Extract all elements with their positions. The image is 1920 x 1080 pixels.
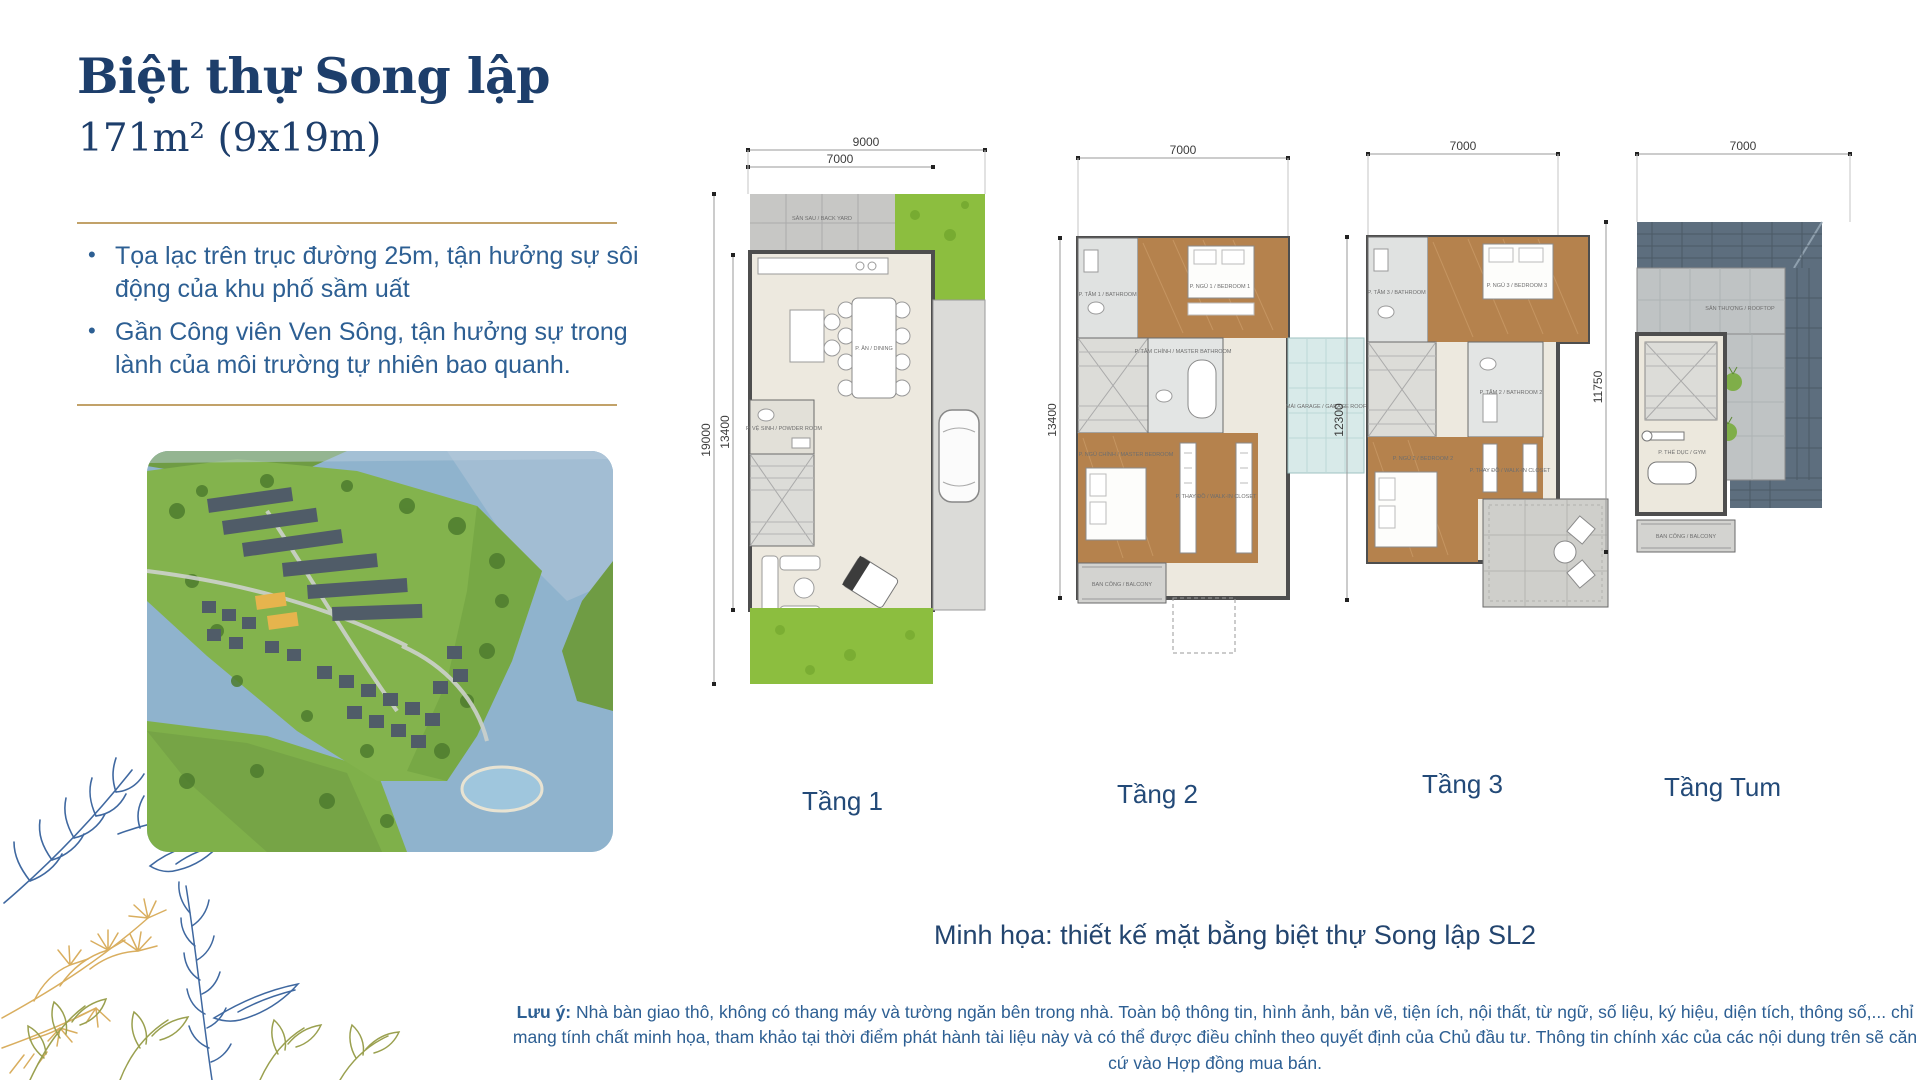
svg-text:P. NGỦ 1 / BEDROOM 1: P. NGỦ 1 / BEDROOM 1: [1190, 283, 1250, 290]
staircase: [750, 454, 814, 546]
stair-gym-block: P. THỂ DỤC / GYM: [1637, 334, 1725, 514]
svg-text:P. NGỦ 2 / BEDROOM 2: P. NGỦ 2 / BEDROOM 2: [1393, 455, 1453, 462]
feature-item: Gần Công viên Ven Sông, tận hưởng sự tro…: [80, 316, 655, 383]
plan3-building: P. TẮM 3 / BATHROOM 3 P. NGỦ 3 / BEDROOM…: [1368, 237, 1608, 607]
illustration-caption: Minh họa: thiết kế mặt bằng biệt thự Son…: [735, 920, 1735, 951]
gold-divider-top: [77, 222, 617, 224]
floor-plan-1: 9000 7000 19000 13400 SÂN SAU / BACK YAR…: [700, 110, 1000, 710]
svg-text:P. THỂ DỤC / GYM: P. THỂ DỤC / GYM: [1658, 449, 1706, 456]
svg-text:9000: 9000: [853, 135, 880, 149]
svg-text:13400: 13400: [1048, 403, 1059, 437]
aerial-masterplan-image: [147, 451, 613, 852]
plantum-building: SÂN THƯỢNG / ROOFTOP P. T: [1637, 222, 1822, 552]
balcony: BAN CÔNG / BALCONY: [1078, 563, 1166, 603]
svg-text:P. VỆ SINH / POWDER ROOM: P. VỆ SINH / POWDER ROOM: [746, 424, 822, 432]
front-yard: [750, 608, 933, 684]
floor-label-tum: Tầng Tum: [1650, 772, 1795, 803]
svg-text:P. TẮM CHÍNH / MASTER BATHROOM: P. TẮM CHÍNH / MASTER BATHROOM: [1135, 347, 1232, 355]
plan1-building: SÂN SAU / BACK YARD P. ĂN / DINING: [746, 194, 985, 684]
svg-text:P. NGỦ 3 / BEDROOM 3: P. NGỦ 3 / BEDROOM 3: [1487, 282, 1547, 289]
blue-sprig-illustration: [179, 882, 298, 1080]
svg-text:SÂN SAU / BACK YARD: SÂN SAU / BACK YARD: [792, 215, 852, 222]
svg-text:7000: 7000: [1170, 143, 1197, 157]
svg-text:12300: 12300: [1333, 403, 1346, 437]
kitchen-island: [790, 310, 824, 362]
svg-text:7000: 7000: [1450, 139, 1477, 153]
floor-plan-tum: 7000 11750: [1590, 132, 1920, 712]
svg-text:P. TẮM 2 / BATHROOM 2: P. TẮM 2 / BATHROOM 2: [1480, 388, 1543, 396]
floor-plan-2: 7000 13400 P. TẮM 1 / BATHROOM 1 P. NGỦ …: [1048, 138, 1368, 718]
svg-text:P. TẮM 1 / BATHROOM 1: P. TẮM 1 / BATHROOM 1: [1079, 290, 1142, 298]
svg-text:P. TẮM 3 / BATHROOM 3: P. TẮM 3 / BATHROOM 3: [1368, 288, 1431, 296]
floor-label-3: Tầng 3: [1395, 769, 1530, 800]
gold-divider-bottom: [77, 404, 617, 406]
floor-label-1: Tầng 1: [775, 786, 910, 817]
svg-text:13400: 13400: [718, 415, 732, 449]
svg-text:11750: 11750: [1591, 370, 1605, 403]
svg-text:7000: 7000: [827, 152, 854, 166]
svg-text:BAN CÔNG / BALCONY: BAN CÔNG / BALCONY: [1656, 533, 1717, 540]
gold-dill-illustration: [2, 899, 166, 1073]
bathtub: [1188, 360, 1216, 418]
feature-list: Tọa lạc trên trục đường 25m, tận hưởng s…: [80, 240, 655, 391]
disclaimer-label: Lưu ý:: [517, 1002, 571, 1022]
brochure-page: Biệt thự Song lập 171m² (9x19m) Tọa lạc …: [0, 0, 1920, 1080]
lagoon-pool: [462, 767, 542, 811]
floor-label-2: Tầng 2: [1090, 779, 1225, 810]
staircase: [1368, 342, 1436, 437]
legal-disclaimer: Lưu ý: Nhà bàn giao thô, không có thang …: [505, 1000, 1920, 1076]
svg-text:P. NGỦ CHÍNH / MASTER BEDROOM: P. NGỦ CHÍNH / MASTER BEDROOM: [1079, 451, 1174, 458]
disclaimer-text: Nhà bàn giao thô, không có thang máy và …: [513, 1002, 1917, 1073]
svg-text:P. THAY ĐỒ / WALK-IN CLOSET: P. THAY ĐỒ / WALK-IN CLOSET: [1470, 467, 1551, 474]
feature-item: Tọa lạc trên trục đường 25m, tận hưởng s…: [80, 240, 655, 307]
svg-text:7000: 7000: [1730, 139, 1757, 153]
void-below: [1173, 598, 1235, 653]
page-subtitle: 171m² (9x19m): [78, 116, 638, 161]
svg-text:19000: 19000: [700, 423, 713, 457]
aerial-render: [147, 451, 613, 852]
page-title: Biệt thự Song lập: [77, 50, 637, 104]
olive-branches-illustration: [28, 999, 399, 1080]
car: [939, 410, 979, 502]
balcony: BAN CÔNG / BALCONY: [1637, 520, 1735, 552]
svg-text:SÂN THƯỢNG / ROOFTOP: SÂN THƯỢNG / ROOFTOP: [1705, 305, 1775, 312]
svg-text:P. ĂN / DINING: P. ĂN / DINING: [855, 345, 893, 352]
plan2-building: P. TẮM 1 / BATHROOM 1 P. NGỦ 1 / BEDROOM…: [1078, 238, 1367, 653]
svg-text:BAN CÔNG / BALCONY: BAN CÔNG / BALCONY: [1092, 581, 1153, 588]
svg-text:P. THAY ĐỒ / WALK-IN CLOSET: P. THAY ĐỒ / WALK-IN CLOSET: [1176, 493, 1257, 500]
